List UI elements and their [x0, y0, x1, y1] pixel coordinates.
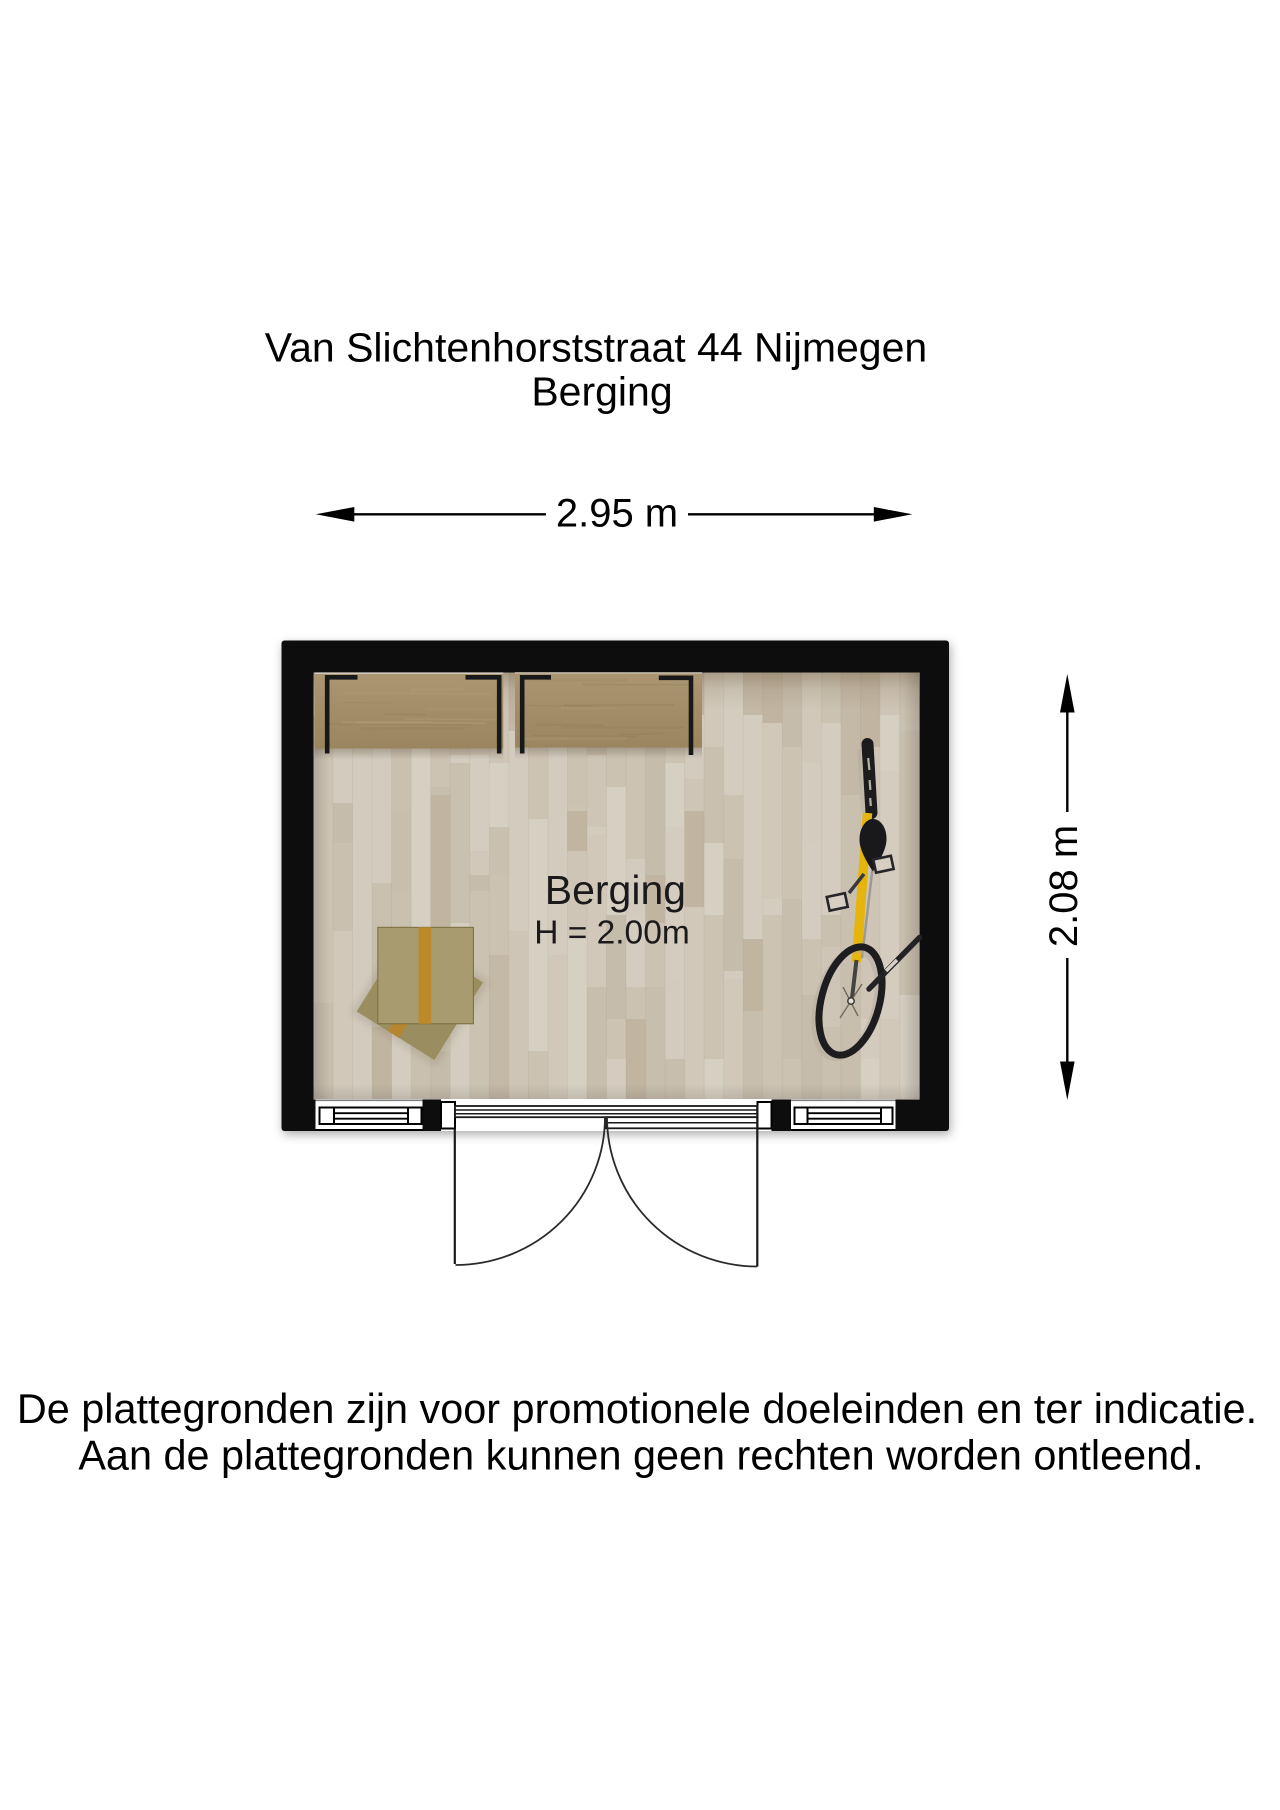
svg-text:Berging: Berging: [531, 369, 672, 415]
svg-text:H = 2.00m: H = 2.00m: [534, 915, 689, 952]
svg-text:De plattegronden zijn voor pro: De plattegronden zijn voor promotionele …: [17, 1386, 1257, 1432]
svg-text:2.95 m: 2.95 m: [556, 491, 678, 535]
svg-text:Berging: Berging: [545, 867, 686, 913]
svg-text:2.08 m: 2.08 m: [1042, 825, 1086, 947]
svg-text:Aan de plattegronden kunnen ge: Aan de plattegronden kunnen geen rechten…: [78, 1433, 1203, 1479]
svg-text:Van Slichtenhorststraat 44 Nij: Van Slichtenhorststraat 44 Nijmegen: [265, 325, 927, 371]
